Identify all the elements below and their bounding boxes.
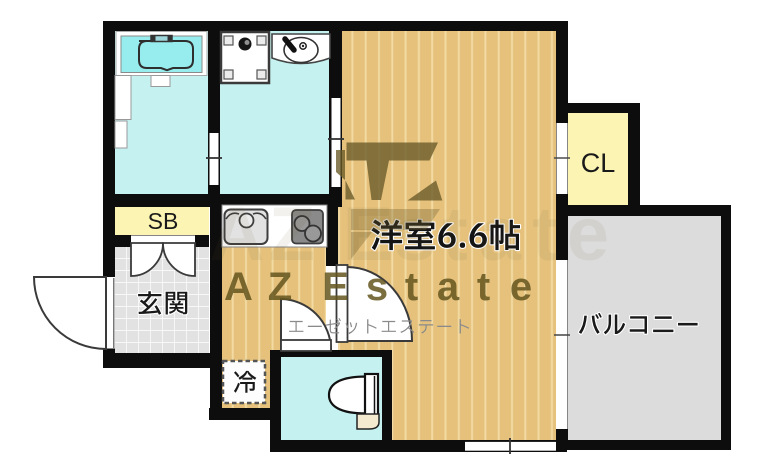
svg-text:Z: Z [268,265,292,309]
svg-text:e: e [567,192,609,277]
svg-text:t: t [405,265,418,309]
svg-text:t: t [532,192,557,277]
svg-text:E: E [322,265,349,309]
svg-text:CL: CL [581,148,616,178]
svg-text:t: t [477,265,490,309]
svg-text:A: A [224,265,253,309]
svg-text:e: e [510,265,532,309]
svg-text:SB: SB [148,208,179,234]
svg-text:a: a [437,265,460,309]
svg-text:s: s [366,265,388,309]
